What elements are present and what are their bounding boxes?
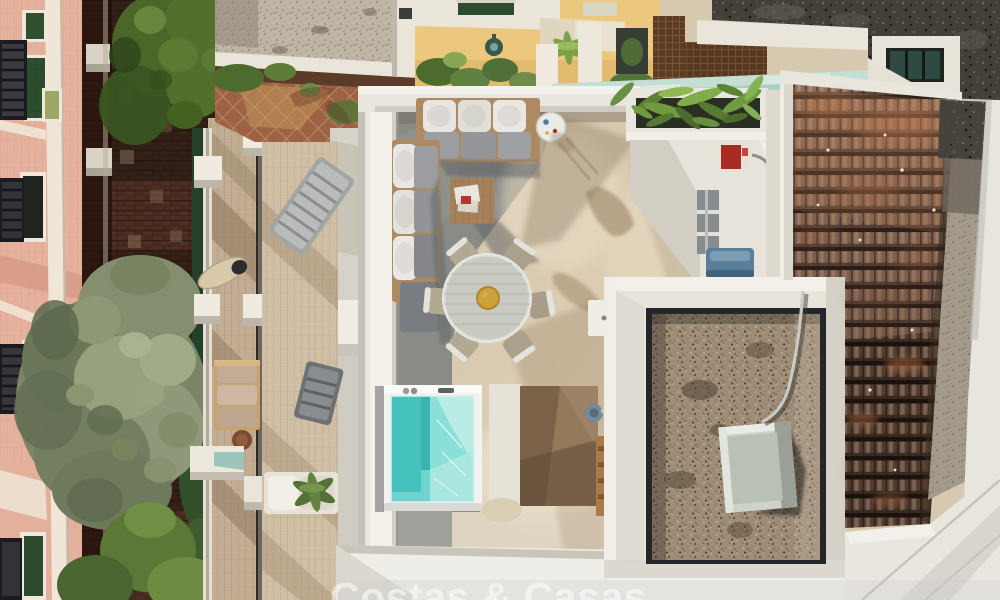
svg-text:Costas & Casas: Costas & Casas bbox=[330, 574, 647, 600]
